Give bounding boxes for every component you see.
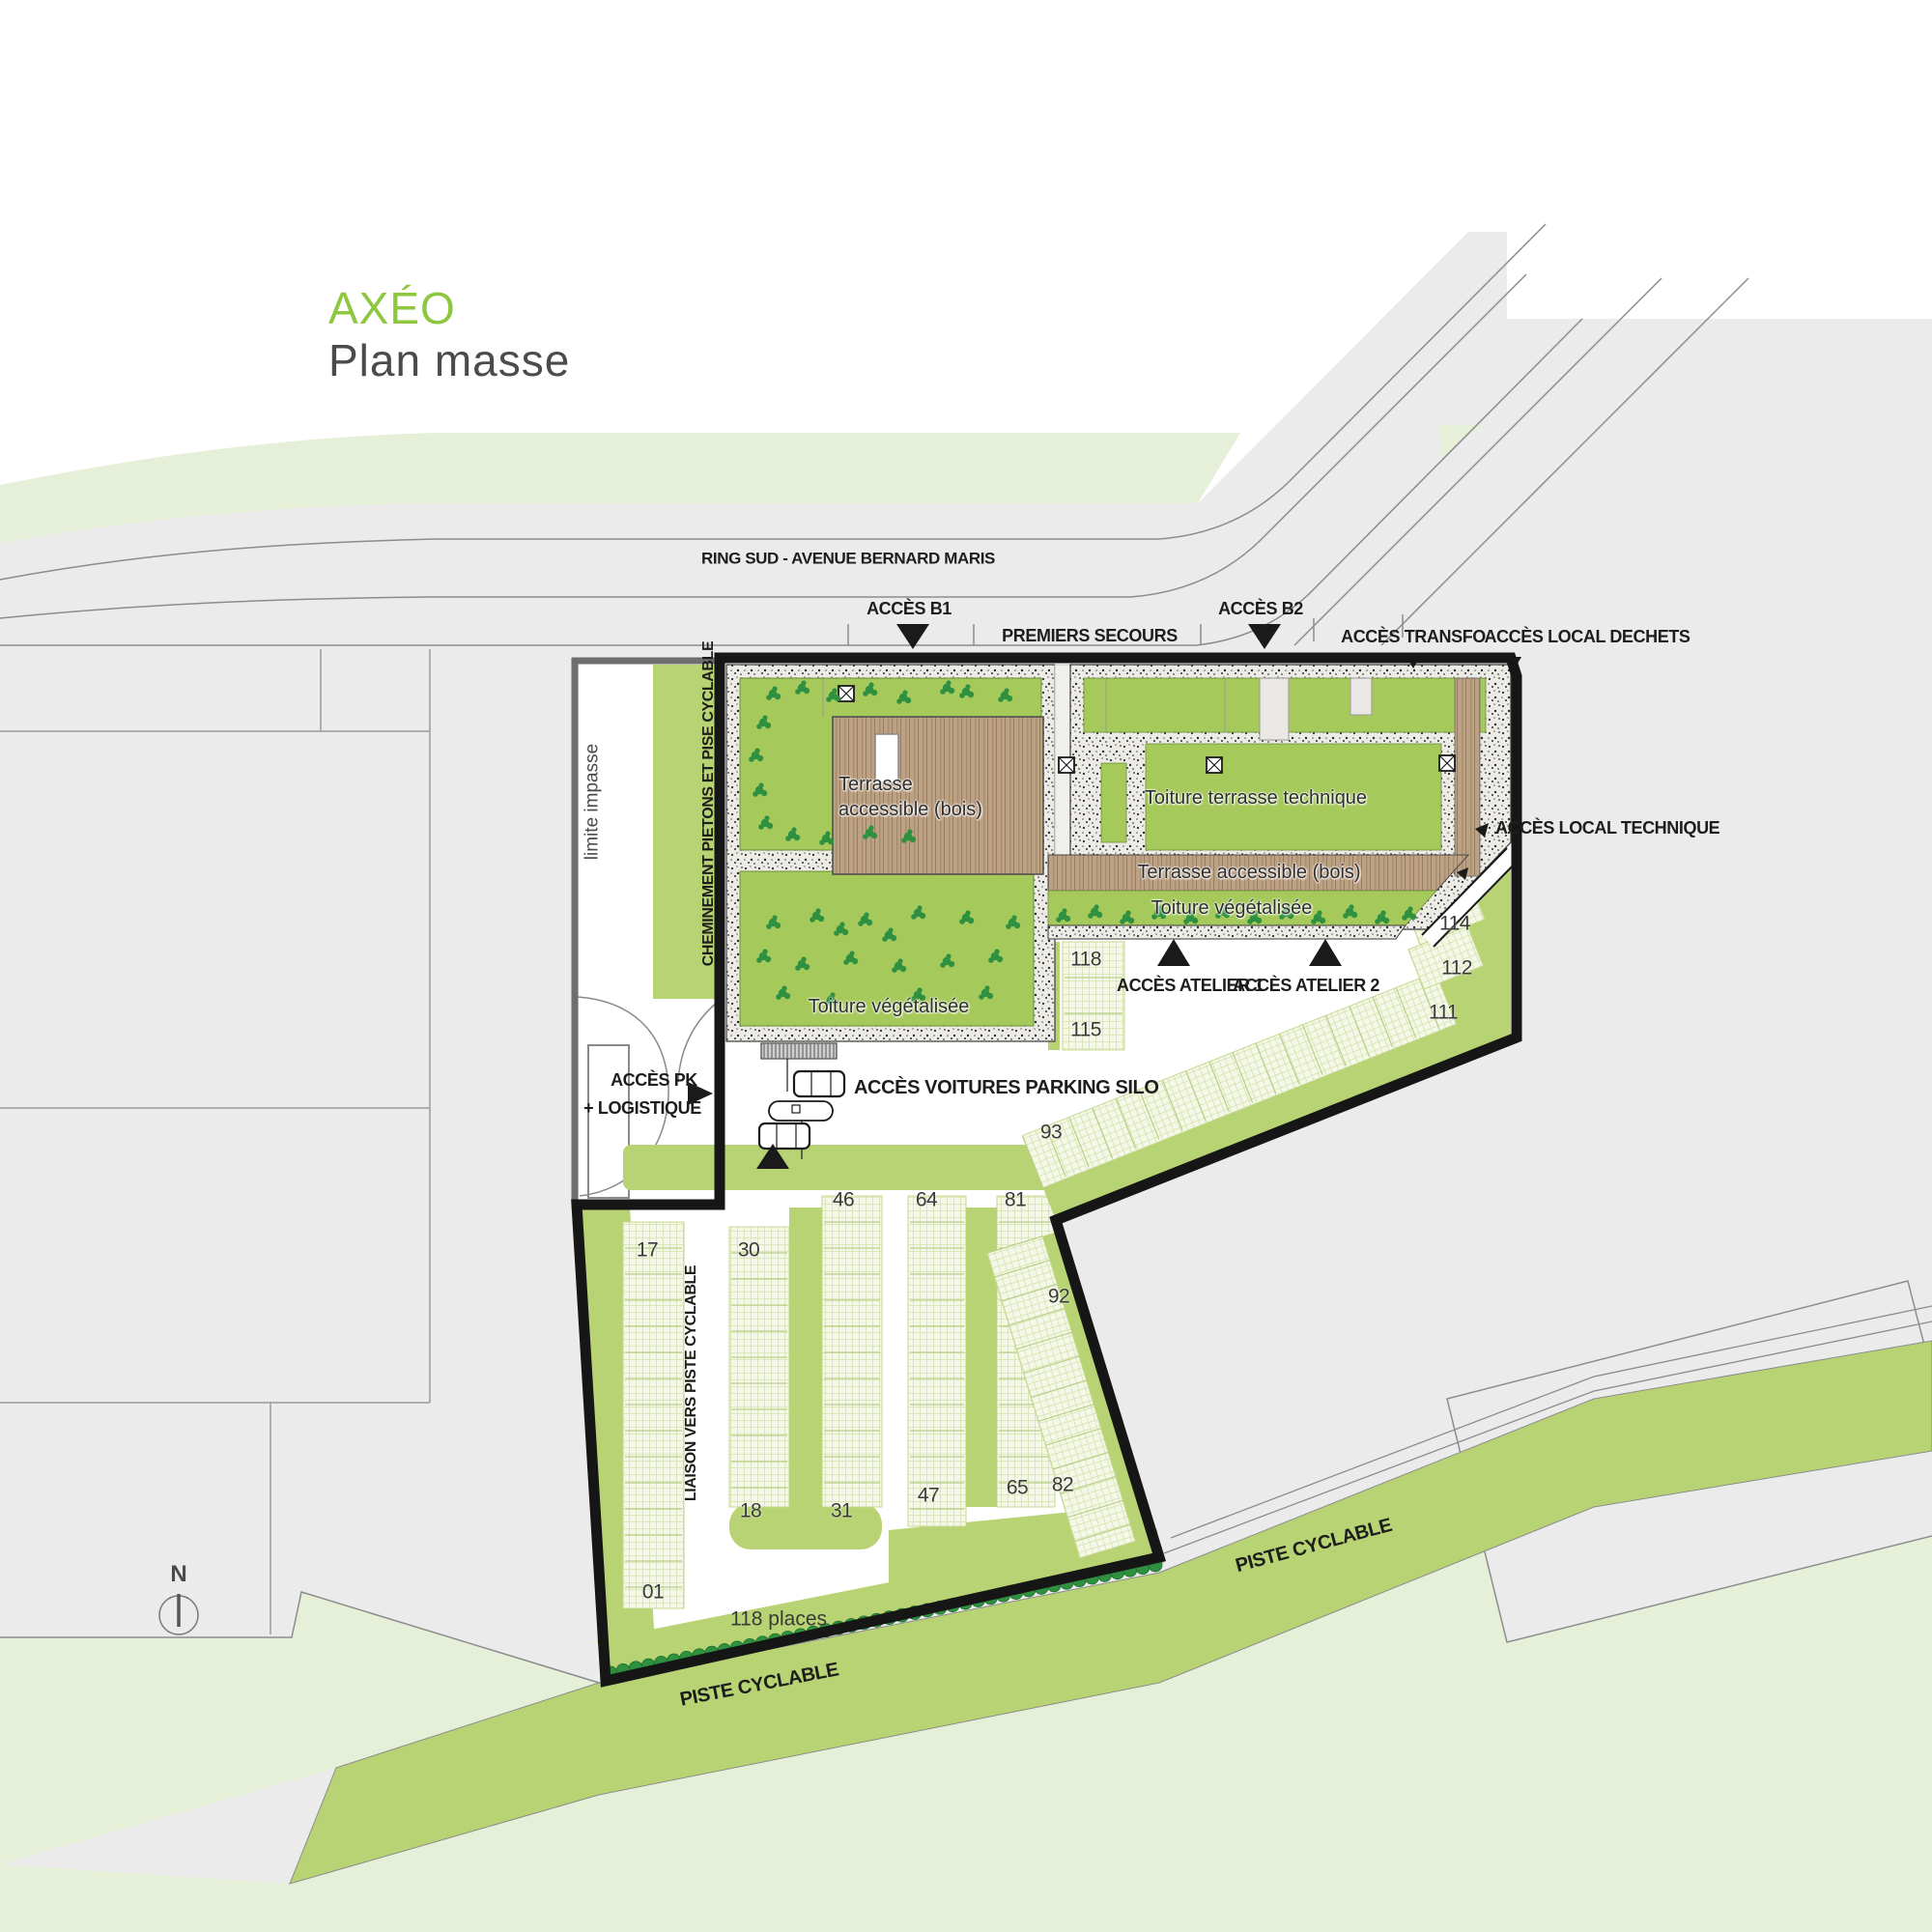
- access-b2-label: ACCÈS B2: [1218, 600, 1303, 617]
- terrace-a-label-line1: Terrasse: [838, 775, 913, 794]
- first-aid-label: PREMIERS SECOURS: [1002, 627, 1178, 644]
- spot-18: 18: [740, 1501, 761, 1521]
- spot-118: 118: [1070, 950, 1101, 970]
- vent-grille: [761, 1043, 837, 1059]
- access-waste-label: ACCÈS LOCAL DECHETS: [1484, 628, 1690, 645]
- access-pk-label-line1: ACCÈS PK: [611, 1071, 697, 1089]
- spot-81: 81: [1005, 1190, 1026, 1210]
- spot-111: 111: [1429, 1003, 1458, 1023]
- terrace-a-label-line2: accessible (bois): [838, 800, 982, 819]
- green-roof-b-label: Toiture végétalisée: [1151, 898, 1313, 918]
- site-plan-drawing: [0, 0, 1932, 1932]
- access-technical-label: ACCÈS LOCAL TECHNIQUE: [1495, 819, 1719, 837]
- spot-46: 46: [833, 1190, 854, 1210]
- limit-impasse-label: limite impasse: [583, 744, 602, 860]
- green-roof-a-label: Toiture végétalisée: [809, 997, 970, 1016]
- building-a: [726, 665, 1055, 1041]
- spot-31: 31: [831, 1501, 852, 1521]
- access-transfo-label: ACCÈS TRANSFO: [1341, 628, 1486, 645]
- spot-17: 17: [637, 1240, 658, 1261]
- access-workshop2-label: ACCÈS ATELIER 2: [1233, 977, 1379, 994]
- page-title: Plan masse: [328, 334, 570, 386]
- spot-112: 112: [1441, 958, 1472, 979]
- north-label: N: [170, 1563, 186, 1586]
- spot-115: 115: [1070, 1020, 1101, 1040]
- spot-47: 47: [918, 1486, 939, 1506]
- access-b1-label: ACCÈS B1: [867, 600, 952, 617]
- spot-64: 64: [916, 1190, 937, 1210]
- spot-65: 65: [1007, 1478, 1028, 1498]
- terrace-b-label: Terrasse accessible (bois): [1137, 863, 1360, 882]
- liaison-label: LIAISON VERS PISTE CYCLABLE: [684, 1265, 699, 1501]
- access-cars-silo-label: ACCÈS VOITURES PARKING SILO: [854, 1078, 1159, 1097]
- spot-30: 30: [738, 1240, 759, 1261]
- spot-92: 92: [1048, 1287, 1069, 1307]
- main-road-label: RING SUD - AVENUE BERNARD MARIS: [701, 551, 995, 567]
- project-title: AXÉO: [328, 282, 456, 334]
- site-plan-page: AXÉO Plan masse RING SUD - AVENUE BERNAR…: [0, 0, 1932, 1932]
- spot-82: 82: [1052, 1475, 1073, 1495]
- capacity-label: 118 places: [730, 1609, 827, 1630]
- access-pk-label-line2: + LOGISTIQUE: [583, 1099, 701, 1117]
- technical-roof-label: Toiture terrasse technique: [1145, 788, 1367, 808]
- spot-93: 93: [1040, 1122, 1062, 1143]
- spot-114: 114: [1439, 914, 1470, 934]
- spot-01: 01: [642, 1582, 664, 1603]
- pedestrian-path-label: CHEMINEMENT PIETONS ET PISE CYCLABLE: [701, 641, 717, 966]
